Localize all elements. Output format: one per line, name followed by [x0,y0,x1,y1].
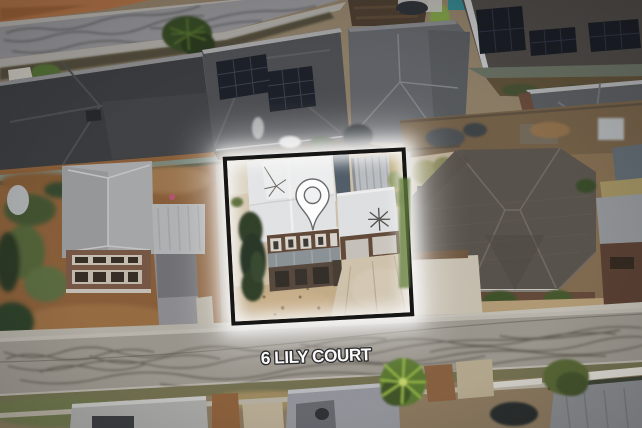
svg-text:6 LILY COURT: 6 LILY COURT [260,344,372,368]
